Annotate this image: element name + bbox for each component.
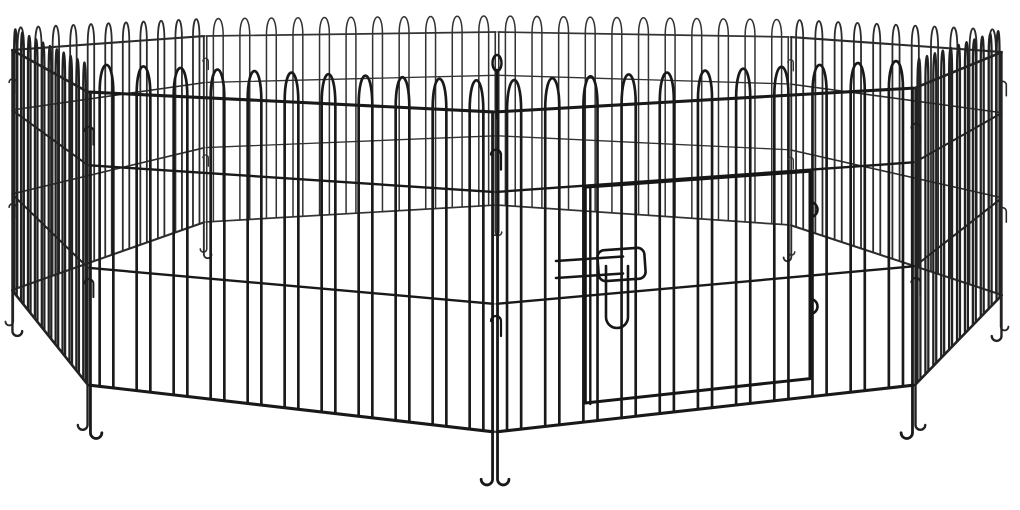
corner-post xyxy=(493,55,502,118)
playpen-panel-7 xyxy=(497,61,914,485)
playpen-panel-6 xyxy=(12,29,87,429)
playpen-panel-8 xyxy=(90,65,494,485)
door-latch xyxy=(556,247,646,328)
product-photo xyxy=(0,0,1020,510)
playpen-panel-5 xyxy=(915,31,1001,430)
pet-playpen-illustration xyxy=(0,0,1020,510)
playpen-panel-2 xyxy=(200,16,501,252)
